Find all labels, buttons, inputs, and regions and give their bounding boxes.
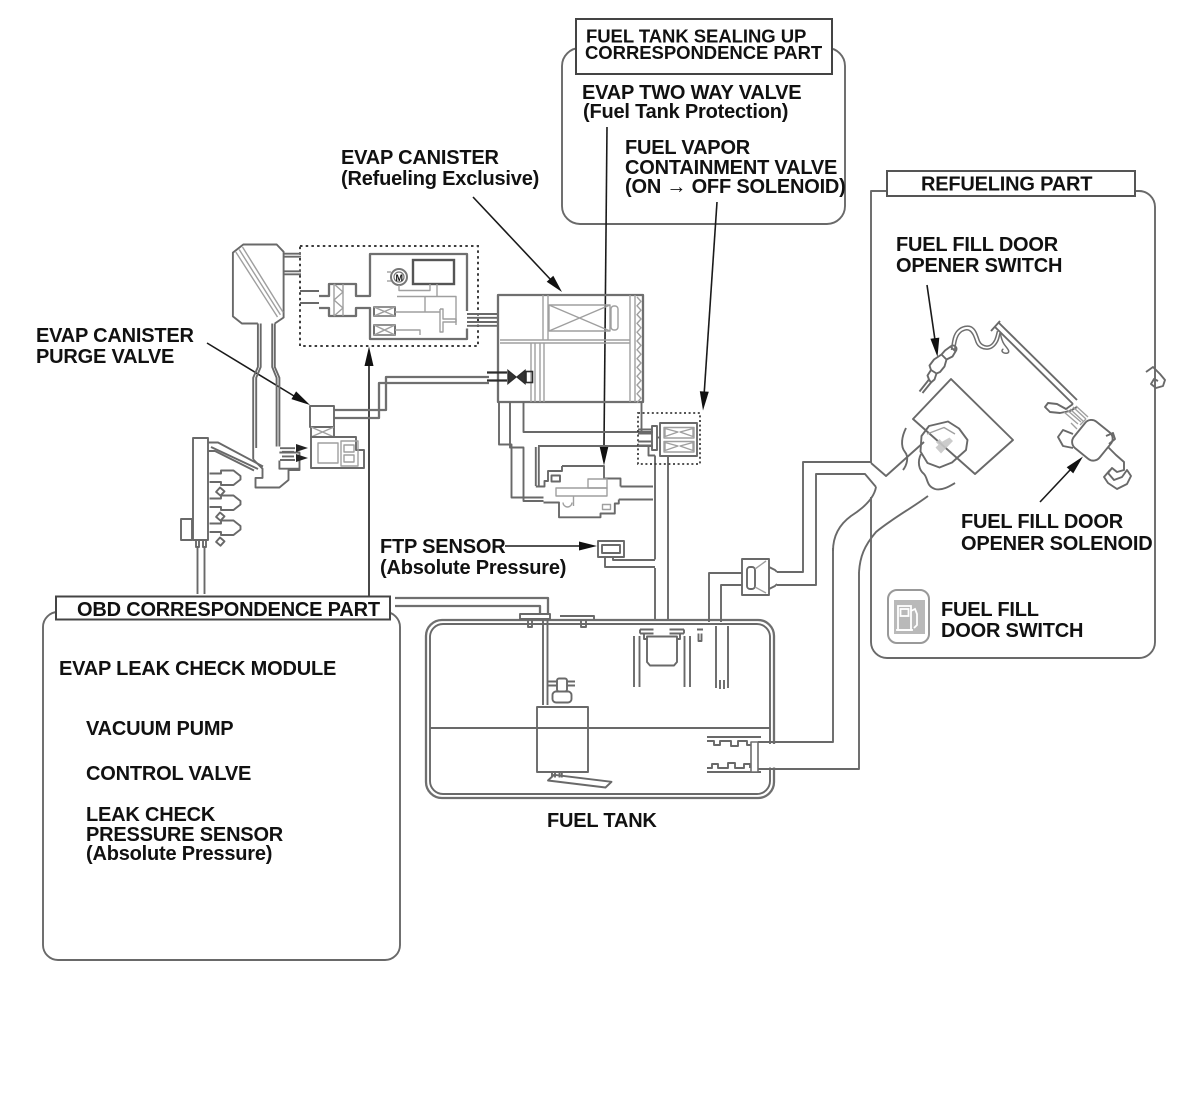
svg-text:FUEL VAPOR: FUEL VAPOR [625, 137, 751, 159]
svg-text:FTP SENSOR: FTP SENSOR [380, 536, 506, 558]
svg-text:OPENER SWITCH: OPENER SWITCH [896, 255, 1062, 277]
svg-text:PURGE VALVE: PURGE VALVE [36, 346, 174, 368]
svg-text:EVAP CANISTER: EVAP CANISTER [341, 147, 500, 169]
svg-text:CORRESPONDENCE PART: CORRESPONDENCE PART [585, 42, 823, 63]
svg-text:CONTROL VALVE: CONTROL VALVE [86, 763, 251, 785]
svg-text:FUEL FILL: FUEL FILL [941, 599, 1039, 621]
svg-text:(ON → OFF SOLENOID): (ON → OFF SOLENOID) [625, 176, 846, 198]
svg-text:EVAP LEAK CHECK MODULE: EVAP LEAK CHECK MODULE [59, 658, 336, 680]
svg-text:(Fuel Tank Protection): (Fuel Tank Protection) [583, 101, 788, 123]
svg-text:FUEL FILL DOOR: FUEL FILL DOOR [896, 234, 1059, 256]
svg-text:VACUUM PUMP: VACUUM PUMP [86, 718, 233, 740]
svg-text:(Refueling Exclusive): (Refueling Exclusive) [341, 168, 539, 190]
svg-text:FUEL TANK: FUEL TANK [547, 810, 657, 832]
svg-text:FUEL FILL DOOR: FUEL FILL DOOR [961, 511, 1124, 533]
svg-text:OBD CORRESPONDENCE PART: OBD CORRESPONDENCE PART [77, 599, 380, 621]
svg-text:DOOR SWITCH: DOOR SWITCH [941, 620, 1083, 642]
svg-text:M: M [396, 273, 404, 283]
svg-text:(Absolute Pressure): (Absolute Pressure) [380, 557, 566, 579]
svg-text:(Absolute Pressure): (Absolute Pressure) [86, 843, 272, 865]
svg-text:OPENER SOLENOID: OPENER SOLENOID [961, 533, 1152, 555]
svg-text:EVAP CANISTER: EVAP CANISTER [36, 325, 195, 347]
svg-text:REFUELING PART: REFUELING PART [921, 174, 1092, 196]
svg-text:LEAK CHECK: LEAK CHECK [86, 804, 216, 826]
